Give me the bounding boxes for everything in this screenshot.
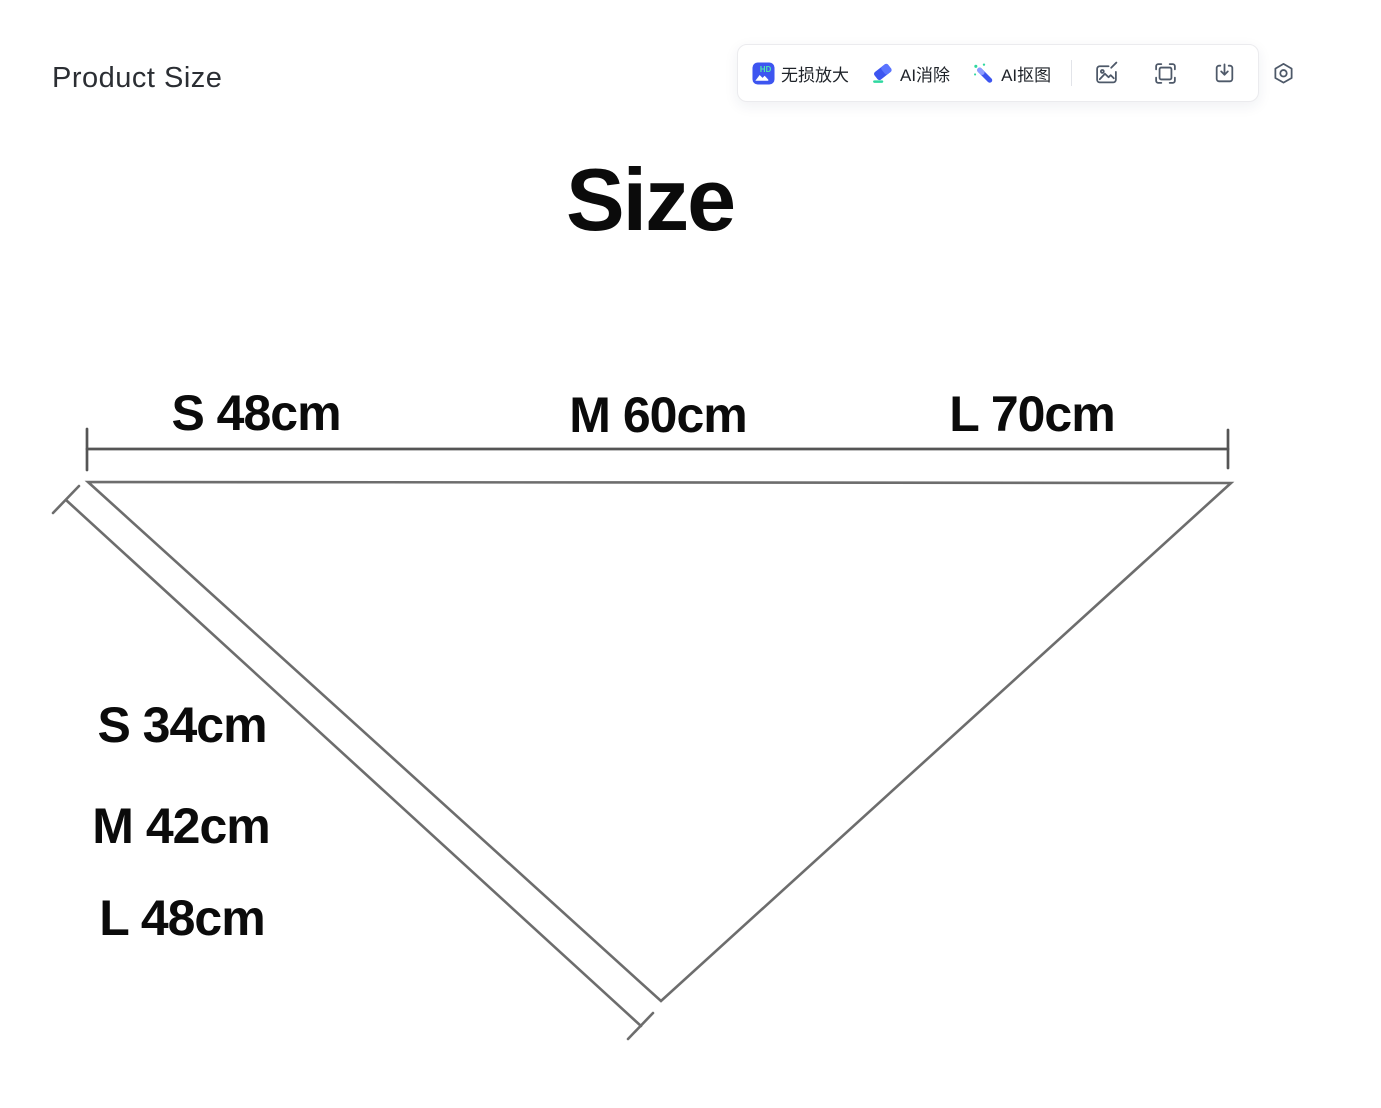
ai-cutout-label: AI抠图 [1001, 61, 1051, 86]
page: Product Size HD 无损放大 [0, 0, 1381, 1108]
hd-upscale-icon: HD [752, 62, 775, 85]
size-diagram-lines [0, 0, 1381, 1108]
settings-button[interactable] [1267, 57, 1300, 90]
top-dimension-line [87, 429, 1228, 470]
hd-upscale-label: 无损放大 [781, 61, 849, 86]
side-dimension-line [53, 486, 653, 1039]
hd-upscale-button[interactable]: HD 无损放大 [750, 57, 851, 90]
ai-magic-wand-icon [972, 62, 995, 85]
ai-cutout-button[interactable]: AI抠图 [970, 57, 1053, 90]
frame-capture-icon [1153, 61, 1178, 86]
page-title: Product Size [52, 62, 222, 95]
side-measurement-m: M 42cm [92, 797, 269, 855]
svg-text:HD: HD [760, 64, 772, 73]
image-edit-icon [1094, 61, 1119, 86]
size-diagram: Size S 48cm M 60cm L 70cm S 34cm M 42cm … [0, 0, 1381, 1108]
top-measurement-s: S 48cm [171, 384, 340, 442]
side-measurement-l: L 48cm [99, 889, 264, 947]
triangle-outline [88, 482, 1231, 1001]
toolbar-divider [1071, 60, 1072, 86]
ai-eraser-icon [871, 62, 894, 85]
top-measurement-m: M 60cm [569, 386, 746, 444]
editor-toolbar: HD 无损放大 AI消除 [737, 44, 1259, 102]
screenshot-button[interactable] [1149, 57, 1182, 90]
side-measurement-s: S 34cm [97, 696, 266, 754]
download-button[interactable] [1208, 57, 1241, 90]
ai-erase-button[interactable]: AI消除 [869, 57, 952, 90]
download-icon [1212, 61, 1237, 86]
edit-image-button[interactable] [1090, 57, 1123, 90]
top-measurement-l: L 70cm [949, 385, 1114, 443]
settings-hexagon-icon [1271, 61, 1296, 86]
ai-erase-label: AI消除 [900, 61, 950, 86]
diagram-title: Size [566, 149, 734, 251]
